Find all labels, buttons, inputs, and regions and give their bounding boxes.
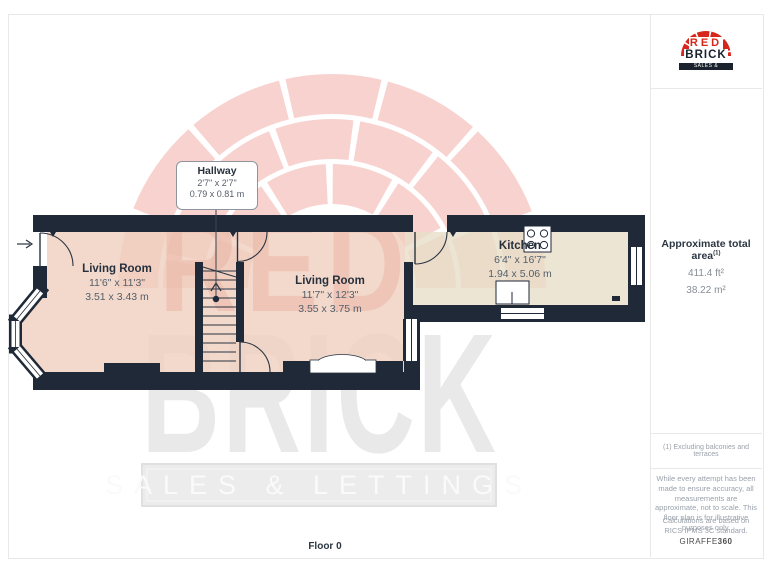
room-label-living-room-2: Living Room 11'7" x 12'3" 3.55 x 3.75 m — [260, 275, 400, 315]
room-dimensions-imperial: 11'7" x 12'3" — [260, 289, 400, 301]
room-name: Kitchen — [450, 240, 590, 252]
room-dimensions-imperial: 2'7" x 2'7" — [177, 178, 257, 188]
room-name: Hallway — [177, 165, 257, 177]
room-dimensions-metric: 3.55 x 3.75 m — [260, 303, 400, 315]
entrance-arrow-icon — [17, 240, 32, 248]
room-label-living-room-1: Living Room 11'6" x 11'3" 3.51 x 3.43 m — [47, 263, 187, 303]
room-callout-hallway: Hallway 2'7" x 2'7" 0.79 x 0.81 m — [176, 161, 258, 210]
room-dimensions-metric: 1.94 x 5.06 m — [450, 268, 590, 280]
sink-icon — [496, 281, 529, 304]
room-name: Living Room — [47, 263, 187, 275]
room-dimensions-metric: 0.79 x 0.81 m — [177, 189, 257, 199]
floorplan-page: { "branding": { "line1": "RED", "line2":… — [0, 0, 768, 576]
room-name: Living Room — [260, 275, 400, 287]
room-dimensions-metric: 3.51 x 3.43 m — [47, 291, 187, 303]
room-dimensions-imperial: 11'6" x 11'3" — [47, 277, 187, 289]
room-label-kitchen: Kitchen 6'4" x 16'7" 1.94 x 5.06 m — [450, 240, 590, 280]
room-dimensions-imperial: 6'4" x 16'7" — [450, 254, 590, 266]
